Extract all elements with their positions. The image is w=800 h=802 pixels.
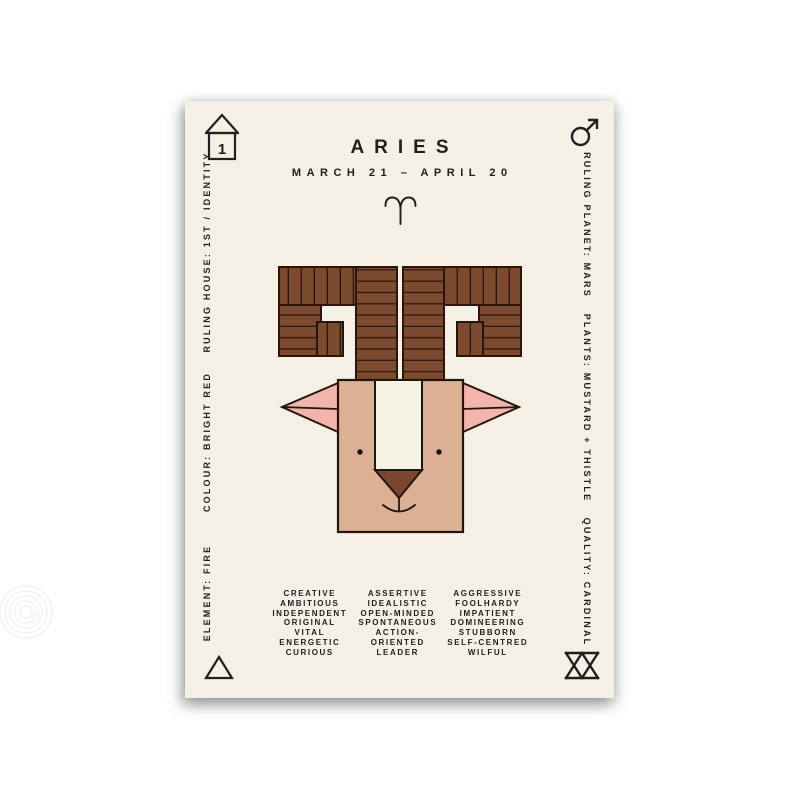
trait-line: ACTION- <box>357 628 437 638</box>
trait-line: ORIENTED <box>357 638 437 648</box>
right-eye <box>436 449 441 454</box>
trait-line: CREATIVE <box>271 589 348 599</box>
trait-line: IMPATIENT <box>446 609 529 619</box>
page-background: 1 ARIES MARCH 21 – APRIL 20 <box>0 0 800 802</box>
trait-line: LEADER <box>357 648 437 658</box>
trait-line: CURIOUS <box>271 648 348 658</box>
trait-line: ORIGINAL <box>271 618 348 628</box>
watermark-fingerprint-icon <box>0 582 54 642</box>
trait-line: VITAL <box>271 628 348 638</box>
trait-line: DOMINEERING <box>446 618 529 628</box>
right-horn <box>403 267 521 380</box>
trait-line: WILFUL <box>446 648 529 658</box>
left-ear <box>282 383 338 432</box>
trait-line: AGGRESSIVE <box>446 589 529 599</box>
trait-line: ENERGETIC <box>271 638 348 648</box>
trait-line: OPEN-MINDED <box>357 609 437 619</box>
trait-line: FOOLHARDY <box>446 599 529 609</box>
trait-line: STUBBORN <box>446 628 529 638</box>
trait-line: SPONTANEOUS <box>357 618 437 628</box>
traits-column-1: CREATIVE AMBITIOUS INDEPENDENT ORIGINAL … <box>271 589 348 658</box>
trait-line: IDEALISTIC <box>357 599 437 609</box>
blaze-stripe <box>375 380 422 470</box>
right-ear <box>463 383 519 432</box>
left-eye <box>357 449 362 454</box>
trait-line: ASSERTIVE <box>357 589 437 599</box>
traits-column-2: ASSERTIVE IDEALISTIC OPEN-MINDED SPONTAN… <box>357 589 437 658</box>
aries-poster: 1 ARIES MARCH 21 – APRIL 20 <box>185 101 614 698</box>
trait-line: AMBITIOUS <box>271 599 348 609</box>
traits-column-3: AGGRESSIVE FOOLHARDY IMPATIENT DOMINEERI… <box>446 589 529 658</box>
trait-line: INDEPENDENT <box>271 609 348 619</box>
left-horn <box>279 267 397 380</box>
trait-line: SELF-CENTRED <box>446 638 529 648</box>
